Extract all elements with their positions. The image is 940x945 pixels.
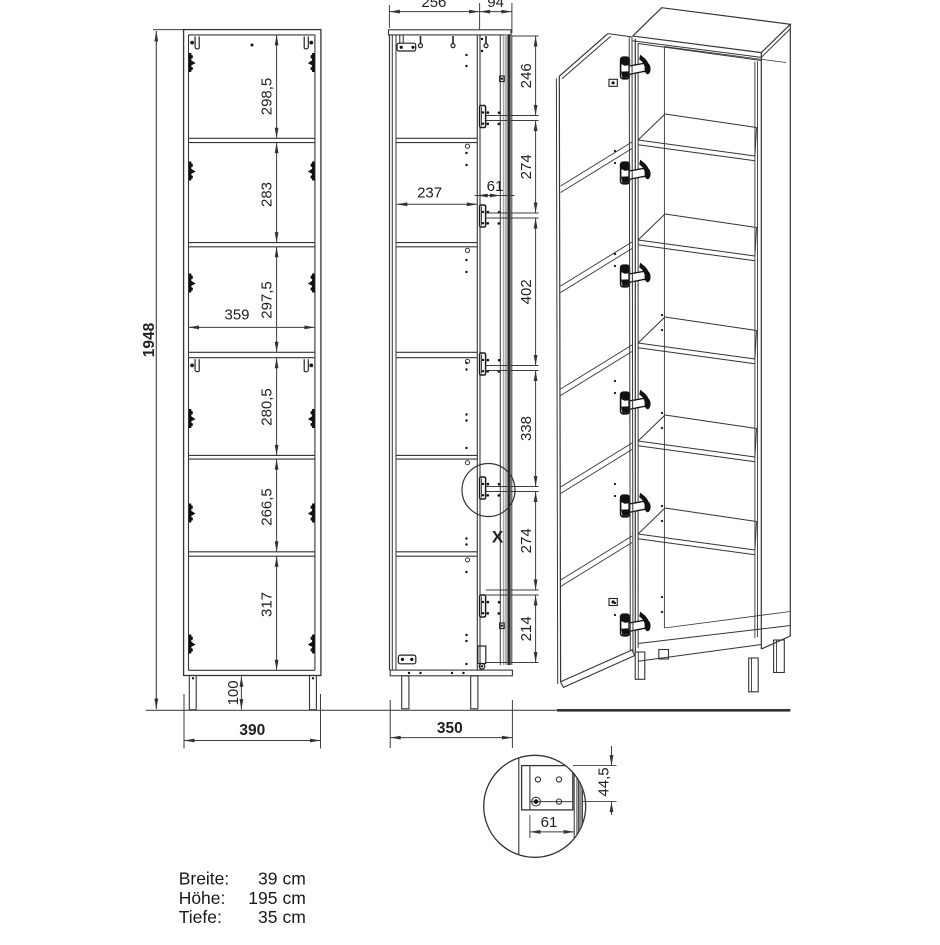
svg-text:317: 317 xyxy=(258,592,275,617)
svg-text:214: 214 xyxy=(518,616,535,641)
svg-text:195: 195 xyxy=(248,888,277,908)
svg-text:Höhe:: Höhe: xyxy=(179,888,226,908)
svg-text:297,5: 297,5 xyxy=(258,281,275,319)
svg-text:274: 274 xyxy=(518,154,535,179)
svg-text:280,5: 280,5 xyxy=(258,388,275,426)
svg-text:1948: 1948 xyxy=(141,322,158,357)
svg-text:cm: cm xyxy=(283,888,306,908)
svg-text:359: 359 xyxy=(224,307,249,324)
svg-text:61: 61 xyxy=(487,178,504,195)
svg-text:cm: cm xyxy=(283,907,306,927)
svg-text:61: 61 xyxy=(541,814,558,831)
svg-text:298,5: 298,5 xyxy=(258,78,275,116)
svg-text:X: X xyxy=(492,528,504,547)
svg-text:246: 246 xyxy=(518,63,535,88)
svg-text:237: 237 xyxy=(417,185,442,202)
svg-text:402: 402 xyxy=(518,279,535,304)
svg-text:350: 350 xyxy=(437,720,463,737)
svg-text:100: 100 xyxy=(225,680,242,705)
svg-text:338: 338 xyxy=(518,416,535,441)
svg-text:266,5: 266,5 xyxy=(258,488,275,526)
svg-text:94: 94 xyxy=(487,0,504,11)
svg-text:Tiefe:: Tiefe: xyxy=(179,907,222,927)
svg-text:39: 39 xyxy=(258,869,277,889)
svg-text:cm: cm xyxy=(283,869,306,889)
svg-text:390: 390 xyxy=(239,722,265,739)
svg-text:Breite:: Breite: xyxy=(179,869,230,889)
svg-text:256: 256 xyxy=(421,0,446,11)
svg-text:35: 35 xyxy=(258,907,277,927)
svg-text:44,5: 44,5 xyxy=(595,767,612,796)
svg-text:283: 283 xyxy=(258,182,275,207)
svg-text:274: 274 xyxy=(518,528,535,553)
